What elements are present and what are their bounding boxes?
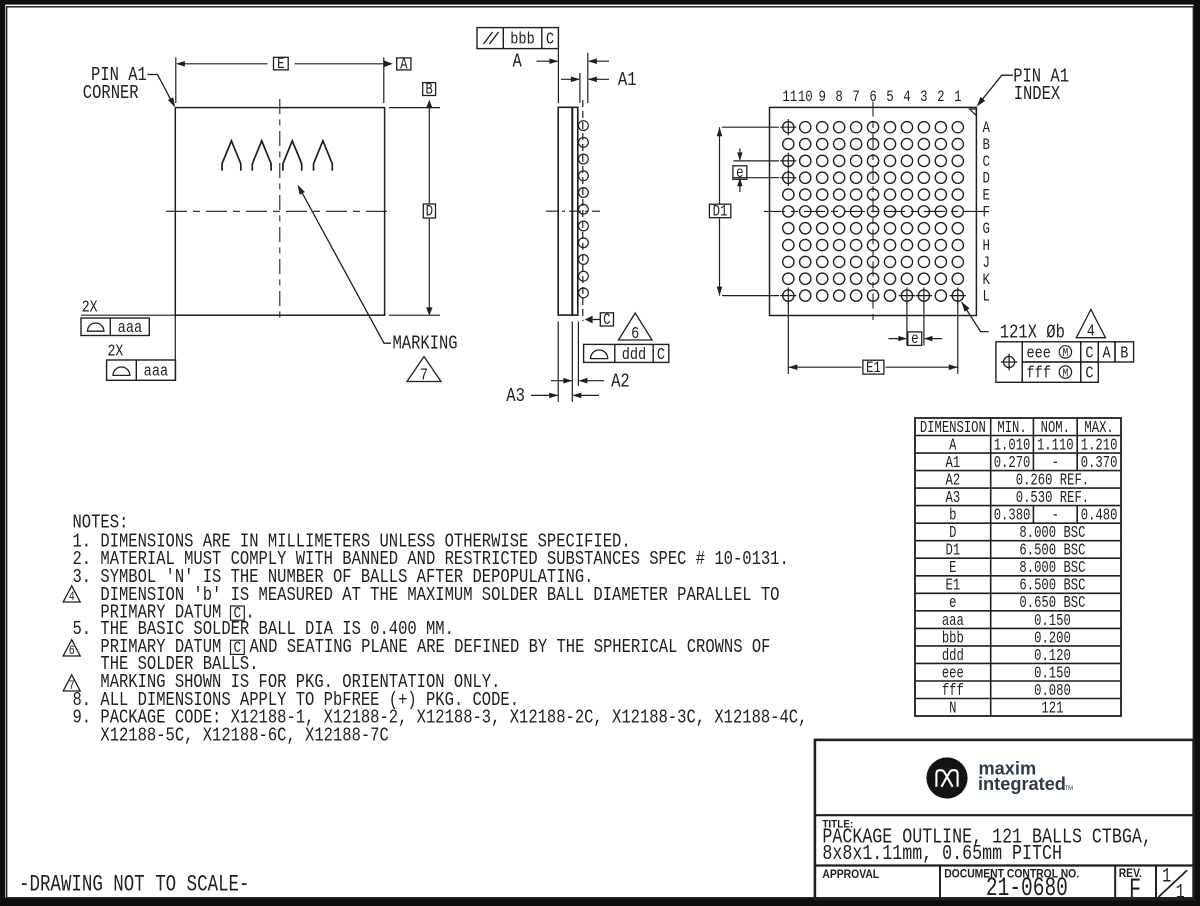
svg-text:0.380: 0.380 [994, 507, 1031, 525]
svg-text:MAX.: MAX. [1084, 419, 1113, 437]
svg-text:6: 6 [631, 323, 639, 343]
svg-text:0.120: 0.120 [1034, 647, 1071, 665]
svg-text:L: L [982, 288, 989, 306]
svg-text:121: 121 [1041, 700, 1063, 718]
svg-text:aaa: aaa [118, 318, 142, 338]
svg-text:0.150: 0.150 [1034, 612, 1071, 630]
svg-text:C: C [546, 29, 554, 49]
svg-text:A2: A2 [611, 371, 630, 393]
svg-text:11: 11 [782, 89, 797, 107]
svg-text:G: G [982, 221, 989, 239]
svg-text:D: D [982, 171, 989, 189]
svg-text:e: e [911, 331, 918, 349]
svg-text:0.260 REF.: 0.260 REF. [1016, 472, 1089, 490]
svg-text:bbb: bbb [510, 29, 534, 49]
svg-text:9: 9 [818, 89, 825, 107]
svg-text:e: e [736, 165, 743, 183]
svg-text:6: 6 [69, 645, 75, 658]
svg-text:e: e [949, 595, 956, 613]
svg-text:1: 1 [1176, 882, 1185, 905]
svg-text:0.080: 0.080 [1034, 682, 1071, 700]
svg-text:8x8x1.11mm, 0.65mm PITCH: 8x8x1.11mm, 0.65mm PITCH [822, 841, 1062, 865]
svg-text:N: N [949, 700, 956, 718]
svg-text:H: H [982, 238, 989, 256]
svg-text:A3: A3 [506, 386, 525, 408]
svg-text:5: 5 [886, 89, 893, 107]
svg-text:0.480: 0.480 [1081, 507, 1118, 525]
svg-text:2: 2 [937, 89, 944, 107]
svg-text:C: C [1085, 363, 1093, 383]
svg-text:6.500 BSC: 6.500 BSC [1019, 542, 1085, 560]
svg-text:MIN.: MIN. [997, 419, 1026, 437]
svg-text:2X: 2X [108, 343, 124, 361]
svg-text:6.500 BSC: 6.500 BSC [1019, 577, 1085, 595]
svg-text:B: B [1120, 343, 1128, 363]
svg-text:D1: D1 [713, 204, 728, 222]
svg-text:CORNER: CORNER [83, 82, 139, 104]
svg-text:A1: A1 [618, 69, 637, 91]
svg-text:MARKING: MARKING [392, 333, 457, 355]
svg-text:E1: E1 [866, 360, 881, 378]
svg-text:D: D [426, 204, 433, 222]
svg-text:C: C [657, 344, 665, 364]
svg-text:TM: TM [1065, 786, 1074, 792]
svg-text:-: - [1052, 454, 1059, 472]
svg-text:E: E [277, 56, 284, 74]
svg-text:eee: eee [1026, 343, 1050, 363]
svg-text:C: C [1085, 343, 1093, 363]
svg-text:1: 1 [954, 89, 961, 107]
svg-text:8.000 BSC: 8.000 BSC [1019, 560, 1085, 578]
svg-text:8.000 BSC: 8.000 BSC [1019, 525, 1085, 543]
svg-text:1.110: 1.110 [1037, 437, 1074, 455]
svg-text:AND SEATING PLANE ARE DEFINED: AND SEATING PLANE ARE DEFINED BY THE SPH… [250, 636, 771, 658]
svg-text:K: K [982, 272, 990, 290]
svg-text:A3: A3 [946, 489, 961, 507]
svg-text:bbb: bbb [942, 630, 964, 648]
svg-text:M: M [1063, 347, 1069, 360]
svg-text:0.150: 0.150 [1034, 665, 1071, 683]
svg-text:b: b [949, 507, 956, 525]
svg-text:7: 7 [852, 89, 859, 107]
svg-text:0.370: 0.370 [1081, 454, 1118, 472]
svg-text:aaa: aaa [942, 612, 964, 630]
svg-text:A1: A1 [946, 454, 961, 472]
svg-text:NOM.: NOM. [1041, 419, 1070, 437]
svg-text:1.210: 1.210 [1081, 437, 1118, 455]
svg-text:E: E [949, 560, 956, 578]
svg-text:APPROVAL: APPROVAL [822, 869, 879, 882]
svg-text:-DRAWING NOT TO SCALE-: -DRAWING NOT TO SCALE- [19, 872, 250, 898]
svg-text:M: M [1063, 367, 1069, 380]
svg-text:D: D [949, 525, 956, 543]
svg-text:A: A [949, 437, 956, 455]
svg-text:A2: A2 [946, 472, 961, 490]
svg-text:fff: fff [1026, 363, 1050, 383]
svg-text:10: 10 [798, 89, 813, 107]
svg-text:J: J [982, 255, 989, 273]
svg-text:1: 1 [1162, 866, 1171, 889]
svg-text:DIMENSION: DIMENSION [920, 419, 986, 437]
svg-text:0.650 BSC: 0.650 BSC [1019, 595, 1085, 613]
svg-text:4: 4 [69, 591, 75, 604]
svg-text:3: 3 [920, 89, 927, 107]
svg-text:B: B [425, 82, 432, 100]
svg-text:ddd: ddd [942, 647, 964, 665]
svg-text:E: E [982, 187, 989, 205]
svg-text:4: 4 [1087, 321, 1095, 341]
svg-text:7: 7 [420, 365, 428, 385]
svg-text:A: A [512, 51, 522, 73]
svg-text:B: B [982, 137, 989, 155]
svg-text:A: A [1103, 343, 1112, 363]
svg-text:0.200: 0.200 [1034, 630, 1071, 648]
svg-text:0.270: 0.270 [994, 454, 1031, 472]
svg-text:4: 4 [903, 89, 910, 107]
svg-text:INDEX: INDEX [1014, 83, 1061, 105]
svg-text:ddd: ddd [622, 344, 646, 364]
svg-text:D1: D1 [946, 542, 961, 560]
svg-text:21-0680: 21-0680 [986, 873, 1068, 904]
svg-text:integrated: integrated [978, 774, 1066, 794]
svg-text:1.010: 1.010 [994, 437, 1031, 455]
svg-text:E1: E1 [946, 577, 961, 595]
svg-text:A: A [982, 120, 990, 138]
svg-text:C: C [603, 312, 610, 330]
svg-text:C: C [982, 154, 989, 172]
svg-text:0.530 REF.: 0.530 REF. [1016, 489, 1089, 507]
svg-text:F: F [982, 204, 989, 222]
svg-text:aaa: aaa [144, 361, 168, 381]
svg-text:-: - [1052, 507, 1059, 525]
svg-text:2X: 2X [82, 299, 98, 317]
svg-text:X12188-5C, X12188-6C, X12188-7: X12188-5C, X12188-6C, X12188-7C [100, 725, 388, 747]
svg-text:8: 8 [835, 89, 842, 107]
svg-text:F: F [1129, 875, 1141, 906]
svg-text:A: A [400, 56, 408, 74]
svg-text:fff: fff [942, 682, 964, 700]
svg-text:eee: eee [942, 665, 964, 683]
svg-text:121X Øb: 121X Øb [1000, 322, 1065, 344]
